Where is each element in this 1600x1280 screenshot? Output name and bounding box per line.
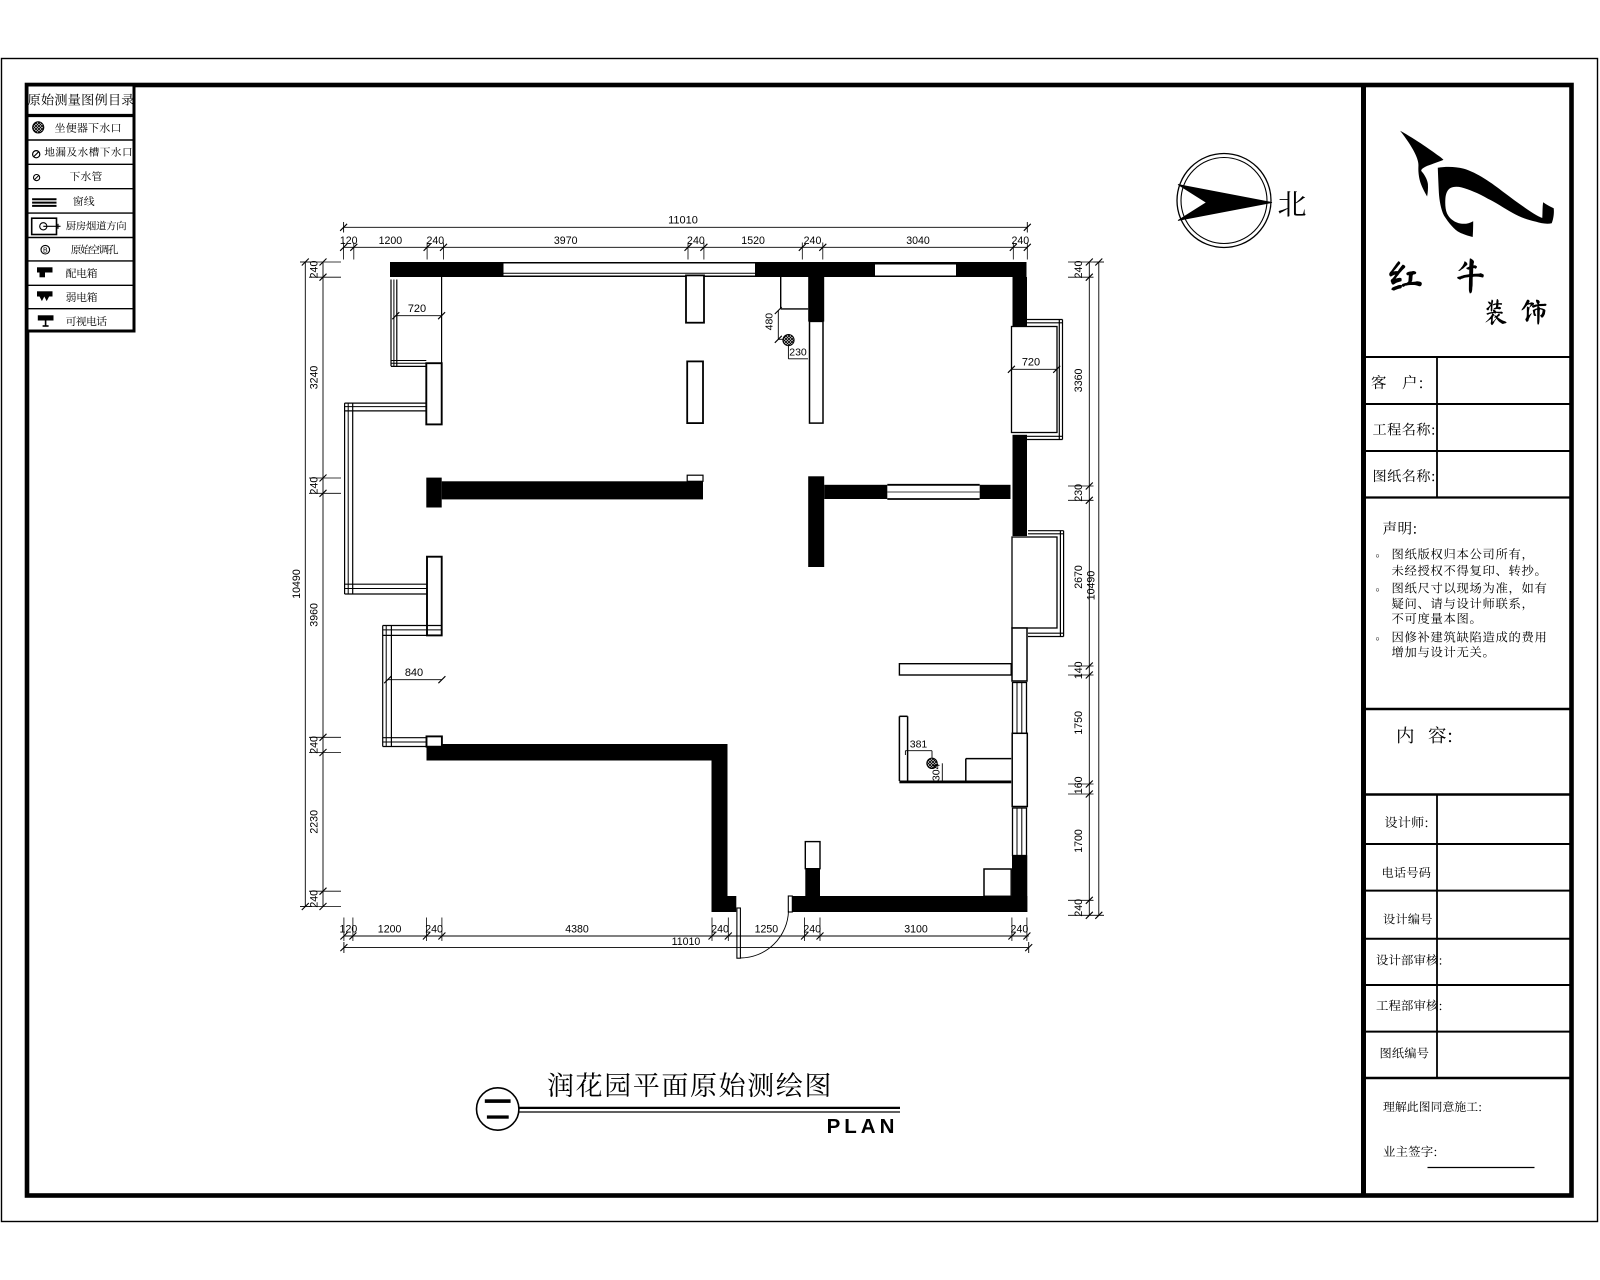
- svg-text:11010: 11010: [672, 936, 701, 948]
- svg-text:3040: 3040: [906, 235, 930, 247]
- svg-text:3100: 3100: [904, 924, 928, 936]
- svg-text:240: 240: [803, 924, 821, 936]
- svg-text:240: 240: [426, 235, 444, 247]
- svg-text:2230: 2230: [309, 810, 321, 834]
- svg-text:1700: 1700: [1073, 829, 1085, 853]
- svg-text:120: 120: [340, 235, 358, 247]
- svg-text:720: 720: [408, 303, 426, 315]
- svg-text:240: 240: [309, 736, 321, 754]
- svg-text:240: 240: [309, 890, 321, 908]
- svg-text:3240: 3240: [309, 366, 321, 390]
- svg-text:1200: 1200: [379, 235, 403, 247]
- svg-text:381: 381: [910, 739, 928, 751]
- svg-text:3360: 3360: [1073, 369, 1085, 393]
- svg-text:120: 120: [340, 924, 358, 936]
- svg-text:2670: 2670: [1073, 565, 1085, 589]
- svg-text:10490: 10490: [1086, 571, 1098, 601]
- svg-text:240: 240: [1011, 924, 1029, 936]
- svg-text:230: 230: [1073, 484, 1085, 502]
- svg-text:3970: 3970: [554, 235, 578, 247]
- svg-text:1750: 1750: [1073, 711, 1085, 735]
- svg-text:1200: 1200: [378, 924, 402, 936]
- svg-text:160: 160: [1073, 776, 1085, 794]
- svg-text:240: 240: [687, 235, 705, 247]
- svg-text:240: 240: [309, 477, 321, 495]
- svg-text:PLAN: PLAN: [827, 1115, 899, 1138]
- svg-text:304: 304: [930, 763, 942, 781]
- svg-text:240: 240: [1073, 899, 1085, 917]
- svg-text:3960: 3960: [309, 603, 321, 627]
- svg-text:230: 230: [789, 346, 807, 358]
- svg-text:240: 240: [804, 235, 822, 247]
- svg-text:240: 240: [1073, 261, 1085, 279]
- svg-text:240: 240: [309, 261, 321, 279]
- svg-text:B: B: [43, 248, 48, 255]
- svg-text:10490: 10490: [291, 569, 303, 599]
- svg-text:1520: 1520: [741, 235, 765, 247]
- svg-text:240: 240: [425, 924, 443, 936]
- svg-text:240: 240: [711, 924, 729, 936]
- svg-text:480: 480: [764, 313, 776, 331]
- svg-text:140: 140: [1073, 661, 1085, 679]
- svg-text:4380: 4380: [565, 924, 589, 936]
- svg-text:1250: 1250: [755, 924, 779, 936]
- svg-text:840: 840: [405, 667, 423, 679]
- svg-text:11010: 11010: [668, 215, 698, 227]
- svg-text:240: 240: [1011, 235, 1029, 247]
- svg-text:720: 720: [1022, 357, 1040, 369]
